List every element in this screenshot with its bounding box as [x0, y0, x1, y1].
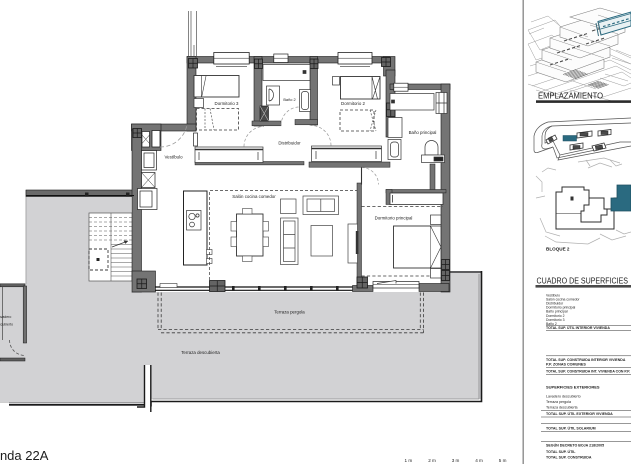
svg-text:Terraza pergola: Terraza pergola — [546, 400, 571, 404]
svg-text:BLOQUE 2: BLOQUE 2 — [546, 247, 570, 252]
svg-text:4 m: 4 m — [475, 458, 483, 463]
svg-text:Lavadero: Lavadero — [0, 315, 11, 319]
svg-text:Dormitorio 2: Dormitorio 2 — [341, 101, 365, 106]
svg-text:descubierto: descubierto — [0, 322, 13, 326]
svg-text:Terraza pergola: Terraza pergola — [274, 310, 305, 315]
svg-text:Dormitorio 3: Dormitorio 3 — [215, 101, 239, 106]
svg-text:TOTAL SUP. CONSTRUIDA INT. VIV: TOTAL SUP. CONSTRUIDA INT. VIVIENDA CON … — [546, 370, 630, 374]
svg-text:SEGÚN DECRETO BOJA 218/2005: SEGÚN DECRETO BOJA 218/2005 — [546, 442, 604, 447]
svg-text:TOTAL SUP. CONSTRUIDA: TOTAL SUP. CONSTRUIDA — [546, 456, 592, 460]
svg-text:5 m: 5 m — [499, 458, 507, 463]
svg-text:TOTAL SUP. ÚTIL INTERIOR VIVIE: TOTAL SUP. ÚTIL INTERIOR VIVIENDA — [546, 325, 610, 330]
svg-text:TOTAL SUP. ÚTIL SOLARIUM: TOTAL SUP. ÚTIL SOLARIUM — [546, 425, 596, 430]
svg-text:TOTAL SUP. CONSTRUIDA INTERIOR: TOTAL SUP. CONSTRUIDA INTERIOR VIVIENDA — [546, 358, 626, 362]
svg-text:Terraza descubierta: Terraza descubierta — [181, 350, 220, 355]
svg-text:TOTAL SUP. ÚTIL: TOTAL SUP. ÚTIL — [546, 449, 576, 454]
svg-text:Baño 2: Baño 2 — [283, 97, 295, 102]
svg-text:Dormitorio principal: Dormitorio principal — [375, 215, 413, 220]
svg-text:Vivienda 22A: Vivienda 22A — [0, 448, 49, 463]
svg-text:TOTAL SUP. ÚTIL EXTERIOR VIVIE: TOTAL SUP. ÚTIL EXTERIOR VIVIENDA — [546, 411, 613, 416]
svg-text:Lavadero descubierto: Lavadero descubierto — [546, 394, 581, 398]
svg-text:Terraza descubierta: Terraza descubierta — [546, 406, 578, 410]
svg-text:CUADRO DE SUPERFICIES: CUADRO DE SUPERFICIES — [537, 277, 629, 286]
svg-text:3 m: 3 m — [452, 458, 460, 463]
svg-text:EMPLAZAMIENTO: EMPLAZAMIENTO — [538, 92, 603, 101]
svg-text:P.P. ZONAS COMUNES: P.P. ZONAS COMUNES — [546, 363, 586, 367]
svg-text:2 m: 2 m — [428, 458, 436, 463]
svg-text:1 m: 1 m — [405, 458, 413, 463]
svg-text:Baño principal: Baño principal — [409, 130, 437, 135]
svg-text:Salón cocina comedor: Salón cocina comedor — [232, 194, 276, 199]
svg-text:SUPERFICIES EXTERIORES: SUPERFICIES EXTERIORES — [546, 385, 600, 390]
svg-text:Vestíbulo: Vestíbulo — [164, 154, 183, 159]
svg-text:Distribuidor: Distribuidor — [278, 141, 301, 146]
